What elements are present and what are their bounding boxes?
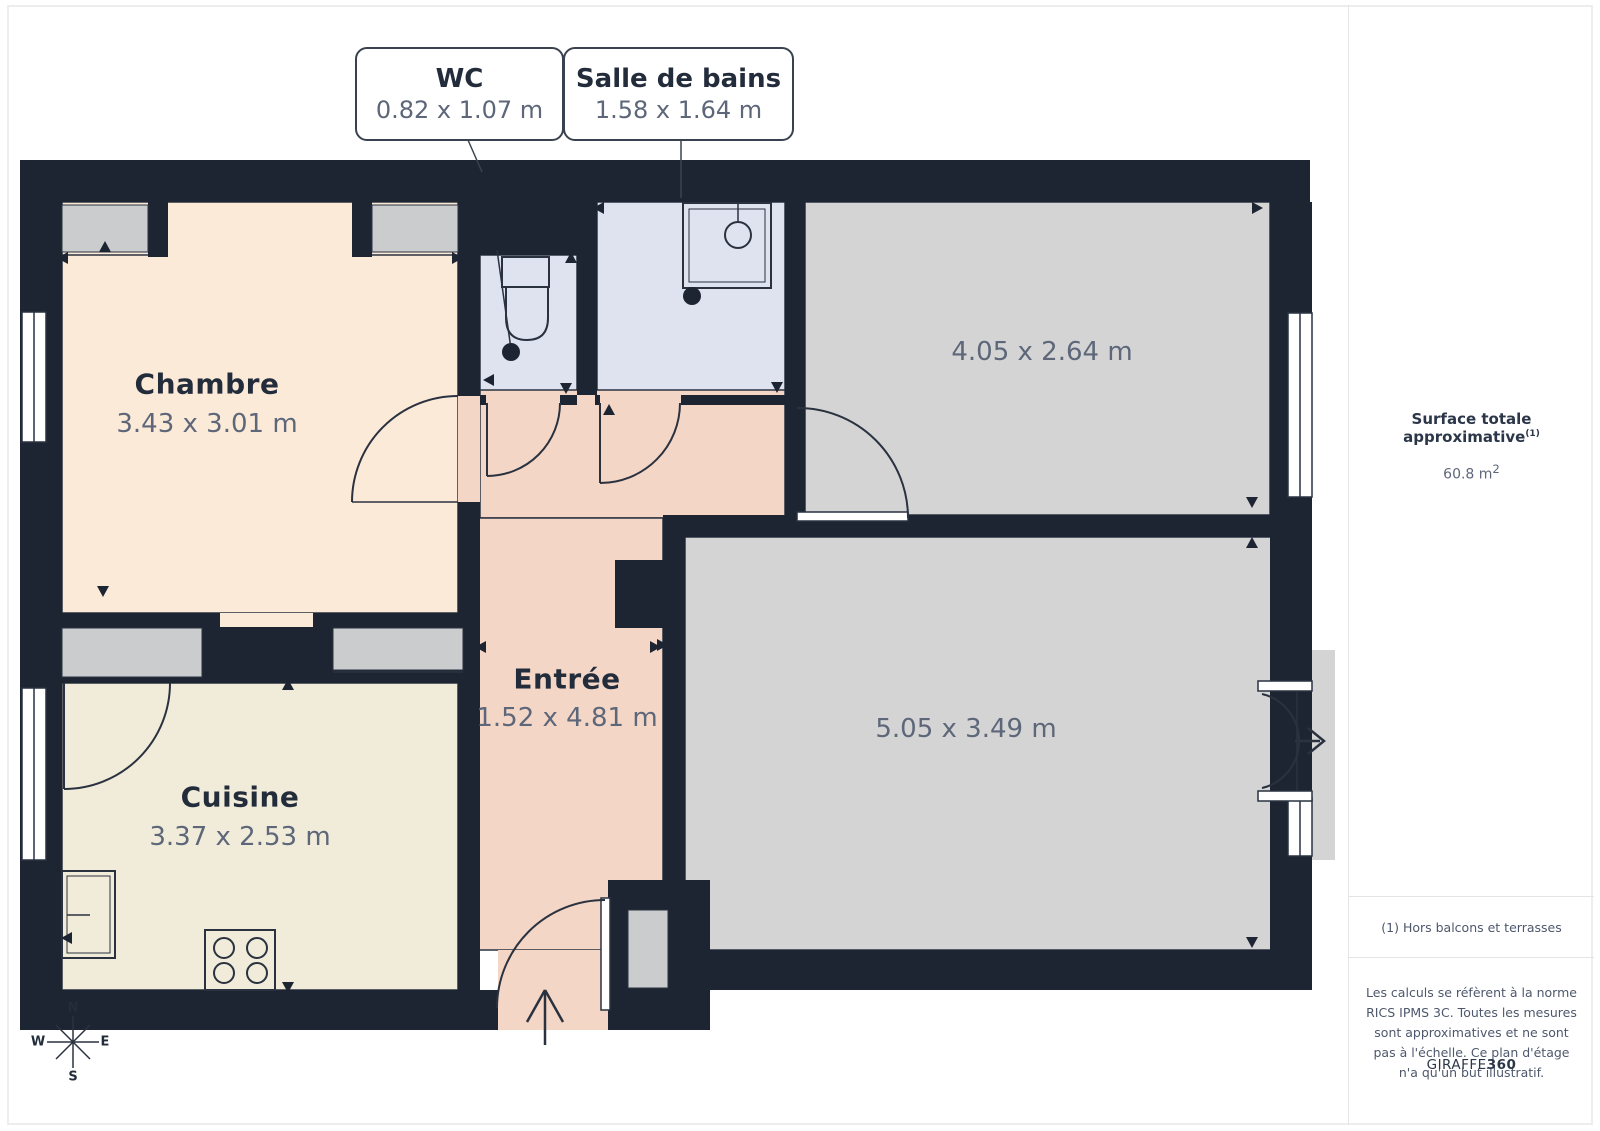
surface-value-text: 60.8 m (1443, 467, 1492, 483)
info-sidebar: Surface totale approximative(1) 60.8 m2 … (1348, 5, 1594, 1125)
compass-east-label: E (101, 1035, 110, 1050)
stove-icon (205, 930, 275, 990)
callout-wc-title: WC (436, 63, 484, 96)
brand-text: GIRAFFE (1427, 1057, 1487, 1073)
room-dims-top-right: 4.05 x 2.64 m (951, 337, 1132, 367)
room-label-entree: Entrée (513, 663, 620, 696)
surface-total-block: Surface totale approximative(1) 60.8 m2 (1349, 410, 1594, 483)
room-dims-entree: 1.52 x 4.81 m (476, 703, 657, 733)
callout-sdb-dims: 1.58 x 1.64 m (595, 95, 762, 125)
room-label-cuisine: Cuisine (181, 781, 300, 814)
surface-total-label: Surface totale approximative(1) (1349, 410, 1594, 446)
floor-plan-page: WC 0.82 x 1.07 m Salle de bains 1.58 x 1… (0, 0, 1600, 1131)
callout-sdb-title: Salle de bains (576, 63, 781, 96)
surface-total-value: 60.8 m2 (1349, 462, 1594, 483)
callout-salle-de-bains: Salle de bains 1.58 x 1.64 m (563, 47, 794, 141)
footnote-text: (1) Hors balcons et terrasses (1349, 920, 1594, 935)
brand-text-bold: 360 (1487, 1057, 1517, 1073)
surface-total-text: Surface totale approximative (1403, 410, 1531, 446)
surface-total-footnote-ref: (1) (1525, 429, 1540, 439)
compass-west-label: W (31, 1035, 45, 1050)
room-dims-cuisine: 3.37 x 2.53 m (149, 822, 330, 852)
compass-south-label: S (68, 1070, 77, 1085)
callout-wc-dims: 0.82 x 1.07 m (376, 95, 543, 125)
room-dims-bottom-right: 5.05 x 3.49 m (875, 714, 1056, 744)
giraffe360-logo: GIRAFFE360 (1349, 1057, 1594, 1073)
room-dims-chambre: 3.43 x 3.01 m (116, 409, 297, 439)
sidebar-divider-1 (1349, 896, 1594, 897)
surface-value-sup: 2 (1492, 462, 1499, 476)
room-label-chambre: Chambre (135, 368, 280, 401)
floor-plan-svg (0, 0, 1348, 1131)
callout-wc: WC 0.82 x 1.07 m (355, 47, 564, 141)
sidebar-divider-2 (1349, 957, 1594, 958)
compass-north-label: N (68, 1001, 79, 1016)
